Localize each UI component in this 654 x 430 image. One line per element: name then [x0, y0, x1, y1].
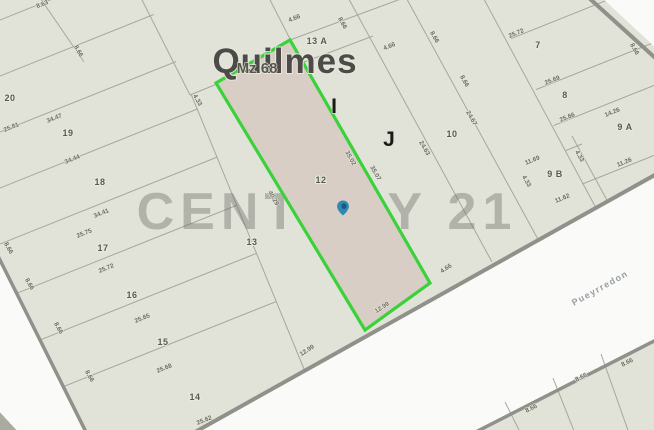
parcel-number: 13: [246, 237, 257, 247]
street-name-label: Pueyrredon: [570, 268, 630, 307]
parcel-number: 13 A: [307, 36, 328, 46]
parcel-number: 20: [4, 93, 15, 103]
parcel-number: 19: [62, 128, 73, 138]
parcel-number: 15: [157, 337, 168, 347]
sector-letter: I: [331, 95, 337, 118]
block-corner-wedge: [0, 406, 22, 430]
parcel-number: 10: [446, 129, 457, 139]
parcel-number: 12: [315, 175, 326, 185]
parcel-number: 8: [562, 90, 568, 100]
cadastral-map: CENTURY 21 Pueyrredon Quilmes Mz 68 2019…: [0, 0, 654, 430]
parcel-number: 16: [126, 290, 137, 300]
parcel-number: 17: [97, 243, 108, 253]
parcel-number: 7: [535, 40, 541, 50]
sector-letter: J: [383, 128, 395, 151]
parcel-number: 9 A: [617, 122, 632, 132]
parcel-number: 18: [94, 177, 105, 187]
block-number-label: Mz 68: [237, 60, 278, 77]
parcel-number: 14: [189, 392, 200, 402]
map-canvas: CENTURY 21 Pueyrredon Quilmes Mz 68 2019…: [0, 0, 654, 430]
parcel-number: 9 B: [547, 169, 563, 179]
city-label: Quilmes: [212, 42, 357, 81]
